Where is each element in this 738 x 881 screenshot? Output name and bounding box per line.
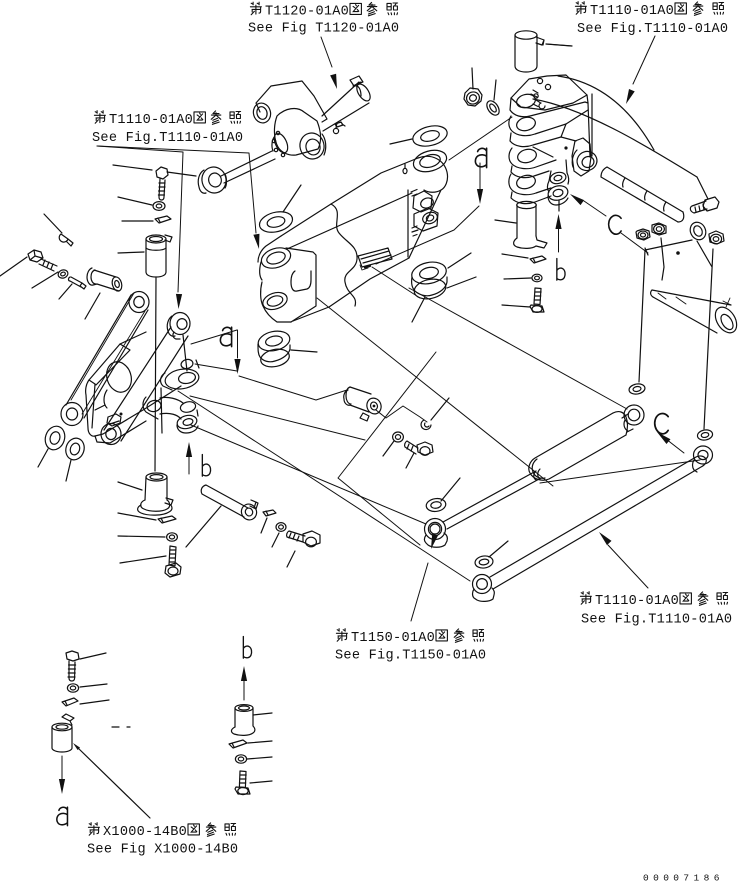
svg-text:See Fig X1000-14B0: See Fig X1000-14B0 xyxy=(87,843,238,858)
svg-text:T1110-01A0: T1110-01A0 xyxy=(590,4,674,19)
svg-text:00007186: 00007186 xyxy=(643,873,724,881)
svg-text:T1150-01A0: T1150-01A0 xyxy=(351,631,435,646)
svg-text:T1110-01A0: T1110-01A0 xyxy=(109,113,193,128)
svg-text:See Fig.T1110-01A0: See Fig.T1110-01A0 xyxy=(577,22,728,37)
svg-text:X1000-14B0: X1000-14B0 xyxy=(103,825,187,840)
svg-text:T1120-01A0: T1120-01A0 xyxy=(265,5,349,20)
svg-text:See Fig.T1150-01A0: See Fig.T1150-01A0 xyxy=(335,649,486,664)
svg-text:T1110-01A0: T1110-01A0 xyxy=(595,594,679,609)
svg-text:See Fig.T1110-01A0: See Fig.T1110-01A0 xyxy=(581,613,732,628)
svg-text:See Fig T1120-01A0: See Fig T1120-01A0 xyxy=(248,21,399,36)
svg-text:See Fig.T1110-01A0: See Fig.T1110-01A0 xyxy=(92,131,243,146)
